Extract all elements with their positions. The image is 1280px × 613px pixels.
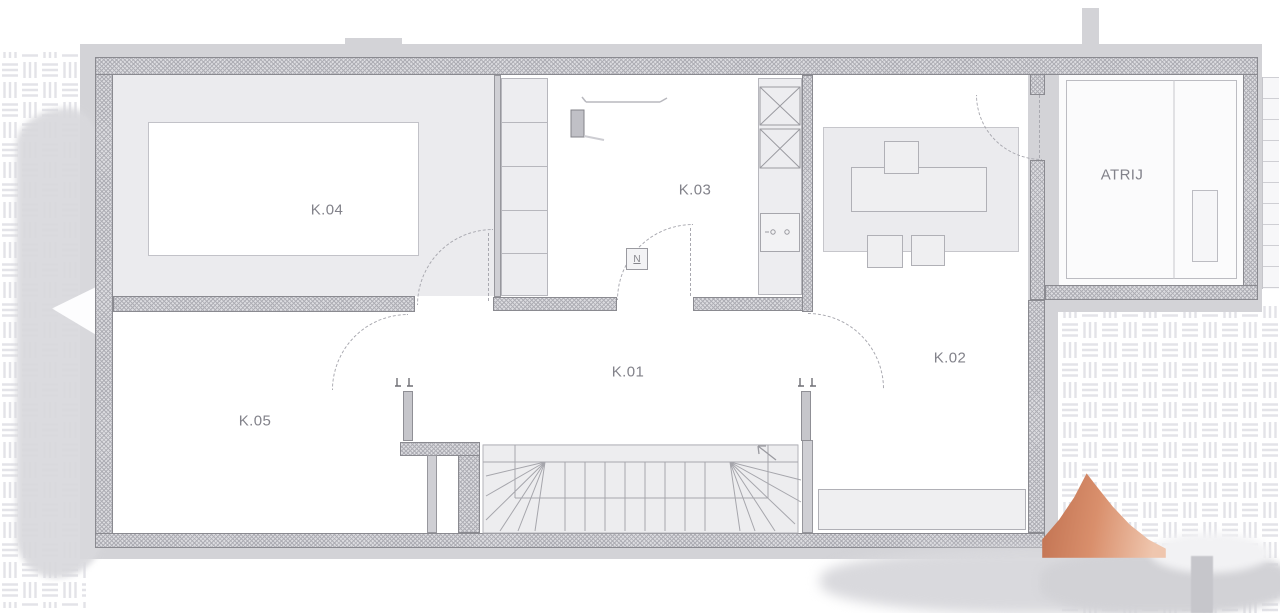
wall-atrium-left-upper <box>1030 74 1045 95</box>
closet-right-wall <box>458 455 480 533</box>
room-label-atrium: ATRIJ <box>1101 167 1144 184</box>
room-k04-rug <box>148 122 419 256</box>
wall-exterior-bottom <box>95 533 1045 548</box>
wall-exterior-top <box>95 57 1258 75</box>
chair-top <box>884 141 919 174</box>
wall-exterior-left <box>95 74 113 548</box>
closet-left-wall <box>427 455 437 533</box>
render-post <box>1191 556 1213 613</box>
room-label-k02: K.02 <box>934 350 966 367</box>
stairs-floor <box>483 444 798 533</box>
wardrobe-shelf-line <box>501 210 548 211</box>
door-open-leaf-k04 <box>488 233 489 301</box>
sideboard <box>818 489 1026 530</box>
appliance-panel <box>760 213 800 252</box>
chair-bottom-right <box>911 235 945 266</box>
table <box>851 167 987 212</box>
wardrobe-shelf-line <box>501 122 548 123</box>
door-leaf-k05 <box>403 391 413 441</box>
room-label-k03: K.03 <box>679 182 711 199</box>
wall-corridor-left-segment <box>493 297 617 311</box>
wall-corridor-right-segment <box>693 297 806 311</box>
door-open-leaf-atrium <box>1039 95 1040 158</box>
door-open-leaf-k03 <box>690 228 691 296</box>
door-symbol-box: N <box>626 248 648 270</box>
room-label-k05: K.05 <box>239 413 271 430</box>
room-label-k01: K.01 <box>612 364 644 381</box>
door-leaf-k02 <box>801 391 811 441</box>
floor-plan: N <box>0 0 1280 613</box>
wardrobe-shelf-line <box>501 166 548 167</box>
wall-exterior-right <box>1028 300 1045 533</box>
room-label-k04: K.04 <box>311 202 343 219</box>
wall-atrium-bottom <box>1045 285 1258 300</box>
top-right-pillar <box>1082 8 1099 57</box>
wardrobe-shelf-line <box>501 253 548 254</box>
wall-k03-k02 <box>802 75 813 312</box>
wall-atrium-left-lower <box>1030 160 1045 300</box>
wall-atrium-right <box>1243 74 1258 300</box>
top-ledge-tab <box>345 38 402 57</box>
render-artifact-left <box>16 108 104 578</box>
wall-k04-k03 <box>494 75 501 297</box>
utility-cabinet <box>758 78 802 295</box>
chair-bottom-left <box>867 235 903 268</box>
atrium-planter <box>1192 190 1218 262</box>
wall-k04-k05 <box>113 296 415 312</box>
exterior-steps <box>1262 77 1279 289</box>
closet-cap-wall <box>400 442 480 456</box>
wall-k02-stairs <box>802 440 813 533</box>
wardrobe-cabinet <box>501 78 548 296</box>
